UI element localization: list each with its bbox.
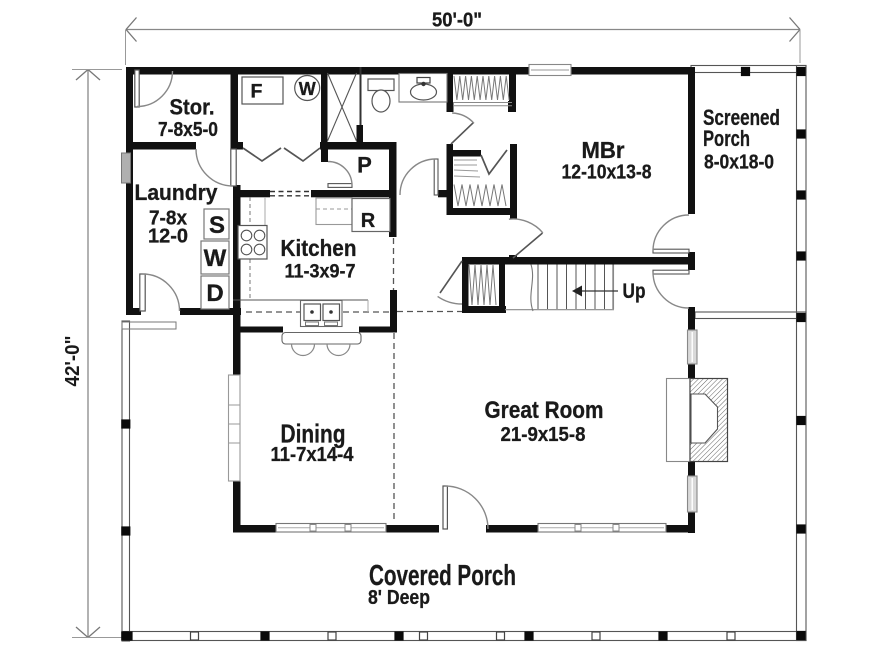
svg-text:8-0x18-0: 8-0x18-0 (704, 152, 774, 174)
svg-text:42'-0": 42'-0" (62, 336, 84, 387)
svg-text:Porch: Porch (703, 126, 750, 151)
svg-text:Stor.: Stor. (170, 95, 215, 120)
svg-text:Kitchen: Kitchen (281, 235, 357, 261)
svg-text:Great Room: Great Room (485, 397, 604, 424)
svg-text:12-10x13-8: 12-10x13-8 (562, 162, 652, 184)
svg-text:11-7x14-4: 11-7x14-4 (271, 443, 355, 466)
svg-text:P: P (357, 153, 372, 178)
svg-text:F: F (251, 81, 263, 103)
svg-text:11-3x9-7: 11-3x9-7 (285, 261, 356, 283)
svg-text:D: D (206, 280, 223, 307)
svg-text:W: W (204, 245, 227, 272)
svg-text:W: W (299, 79, 316, 99)
svg-text:8' Deep: 8' Deep (368, 587, 430, 609)
svg-text:R: R (361, 210, 376, 232)
svg-text:Laundry: Laundry (135, 180, 218, 205)
svg-text:21-9x15-8: 21-9x15-8 (501, 424, 586, 446)
svg-text:7-8x5-0: 7-8x5-0 (158, 118, 218, 141)
svg-text:Up: Up (623, 280, 646, 303)
svg-text:MBr: MBr (582, 137, 625, 163)
svg-text:12-0: 12-0 (148, 225, 188, 248)
svg-text:50'-0": 50'-0" (432, 9, 482, 32)
svg-text:S: S (209, 212, 225, 239)
